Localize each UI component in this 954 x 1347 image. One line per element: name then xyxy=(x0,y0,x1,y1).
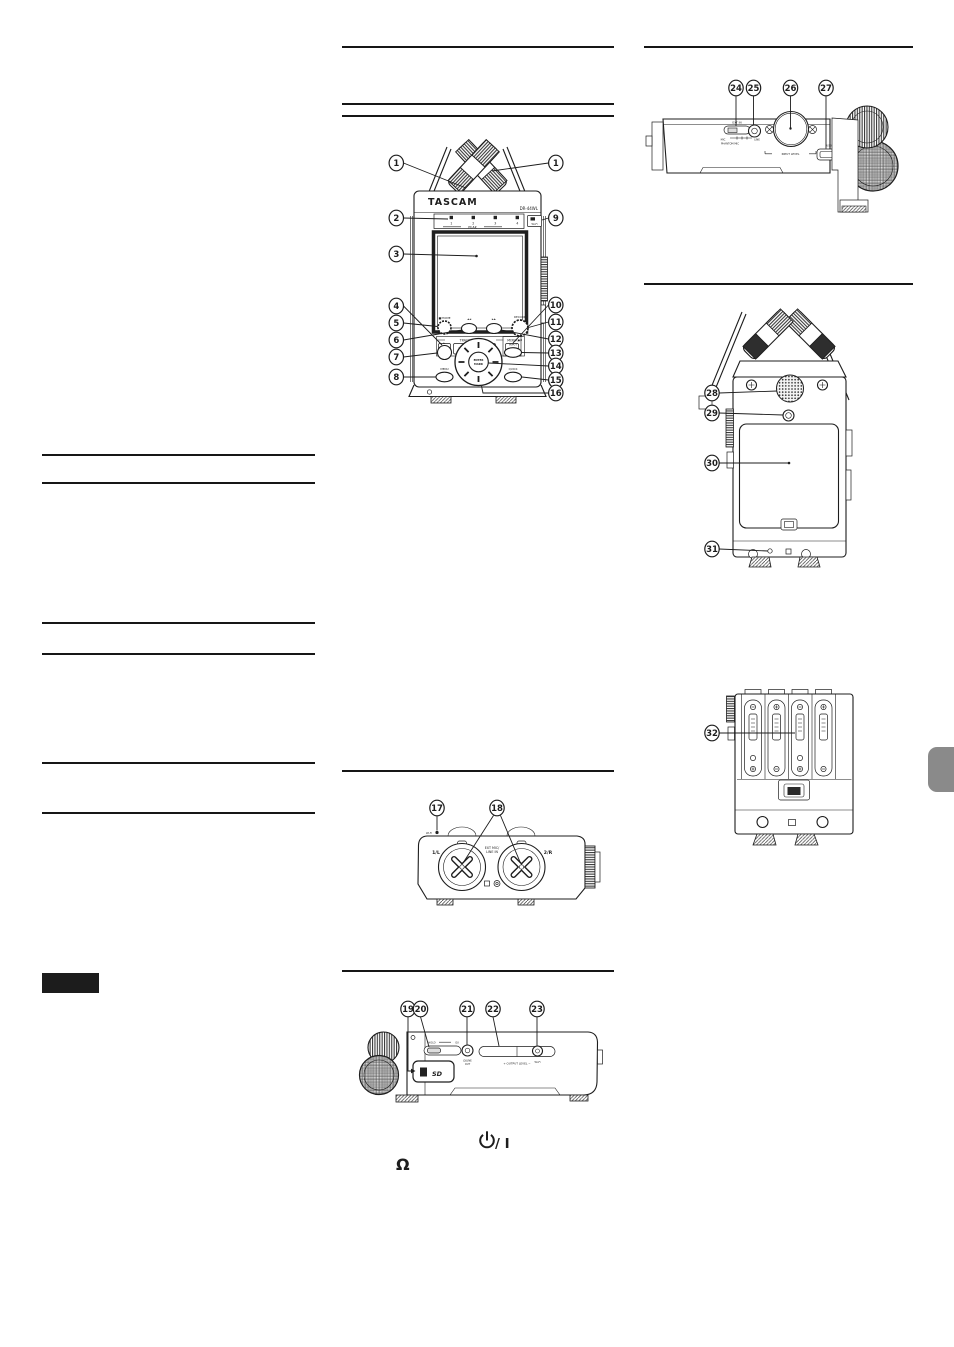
diagram-layer: TASCAM DR-44WL 1 2 3 4 PEAK Wi-Fi xyxy=(0,0,954,1347)
speaker xyxy=(777,375,804,402)
left-side-view-diagram: HOLD O/I SD Ω/LINE OUT xyxy=(360,1001,603,1102)
svg-text:26: 26 xyxy=(785,84,797,94)
svg-text:12: 12 xyxy=(550,335,562,345)
output-level-label: + OUTPUT LEVEL − xyxy=(503,1062,531,1066)
ext-in-jack[interactable] xyxy=(749,125,761,137)
svg-text:OUT: OUT xyxy=(465,1062,471,1066)
callout: 3 xyxy=(389,246,403,262)
svg-text:5: 5 xyxy=(393,319,399,329)
menu-button[interactable] xyxy=(436,372,453,382)
callout: 12 xyxy=(549,331,563,347)
record-label: RECORD xyxy=(514,315,526,319)
svg-text:8: 8 xyxy=(393,373,399,383)
svg-text:27: 27 xyxy=(820,84,832,94)
line-label: LINE xyxy=(754,137,760,141)
rear-view-diagram: 28 29 30 31 xyxy=(699,309,852,567)
callout: 29 xyxy=(705,405,719,421)
callout: 16 xyxy=(549,385,563,401)
callout: 17 xyxy=(430,800,444,816)
stop-home-label: ■/HOME xyxy=(438,316,450,320)
svg-text:18: 18 xyxy=(491,804,503,814)
svg-text:1: 1 xyxy=(450,222,452,226)
callout: 32 xyxy=(705,725,719,741)
callout: 20 xyxy=(413,1001,427,1017)
svg-text:9: 9 xyxy=(553,214,559,224)
svg-text:21: 21 xyxy=(461,1005,473,1015)
rear-mics xyxy=(741,309,836,361)
callout: 25 xyxy=(746,80,760,96)
front-view-diagram: TASCAM DR-44WL 1 2 3 4 PEAK Wi-Fi xyxy=(389,140,563,403)
power-label: O/I xyxy=(455,1040,459,1044)
svg-text:10: 10 xyxy=(550,301,562,311)
svg-text:16: 16 xyxy=(550,389,562,399)
battery-compartment-diagram: 32 xyxy=(705,690,853,846)
peak-label: PEAK xyxy=(468,225,477,229)
mic-pair xyxy=(447,140,509,195)
hold-label: HOLD xyxy=(428,1040,435,1044)
sd-card-slot[interactable]: SD xyxy=(413,1061,454,1082)
wifi-antenna-label: Wi-Fi xyxy=(426,831,432,835)
callout: 1 xyxy=(389,155,403,171)
svg-text:28: 28 xyxy=(706,389,718,399)
svg-text:3: 3 xyxy=(393,250,399,260)
ext-in-label: EXT IN xyxy=(732,120,741,124)
callout: 24 xyxy=(729,80,743,96)
svg-text:32: 32 xyxy=(706,729,718,739)
svg-text:Ω/LINE: Ω/LINE xyxy=(463,1059,472,1063)
svg-text:15: 15 xyxy=(550,376,562,386)
peak-indicators: 1 2 3 4 PEAK xyxy=(434,214,524,229)
sd-logo: SD xyxy=(432,1070,443,1078)
brand-logo: TASCAM xyxy=(428,197,478,208)
play-button[interactable] xyxy=(438,346,452,360)
right-side-view-diagram: EXT IN MIC LINE PHANTOM MIC xyxy=(646,80,898,212)
callout: 6 xyxy=(389,332,403,348)
svg-text:1: 1 xyxy=(393,159,399,169)
svg-text:31: 31 xyxy=(706,545,718,555)
callout: 10 xyxy=(549,297,563,313)
power-standby-icon xyxy=(480,1131,494,1147)
callout: 7 xyxy=(389,349,403,365)
input-level-label: INPUT LEVEL xyxy=(782,152,800,156)
ff-button[interactable] xyxy=(487,324,502,334)
svg-text:24: 24 xyxy=(730,84,742,94)
rew-button[interactable] xyxy=(462,324,477,334)
svg-text:Wi-Fi: Wi-Fi xyxy=(532,222,538,226)
headphone-symbol: Ω xyxy=(396,1155,410,1174)
svg-text:22: 22 xyxy=(487,1005,499,1015)
callout: 31 xyxy=(705,541,719,557)
callout: 4 xyxy=(389,298,403,314)
power-symbol-text: / I xyxy=(495,1136,510,1152)
strap-hole xyxy=(768,549,772,553)
jack-right-label: 2/R xyxy=(544,850,553,856)
svg-text:11: 11 xyxy=(550,318,562,328)
battery-cover[interactable] xyxy=(740,424,839,528)
record-icons: ●/II xyxy=(518,338,523,342)
svg-text:30: 30 xyxy=(706,459,718,469)
svg-text:1: 1 xyxy=(553,159,559,169)
callout: 5 xyxy=(389,315,403,331)
svg-text:MARK: MARK xyxy=(474,362,484,366)
svg-text:25: 25 xyxy=(748,84,760,94)
callout: 27 xyxy=(819,80,833,96)
callout: 18 xyxy=(490,800,504,816)
callout: 23 xyxy=(530,1001,544,1017)
svg-text:3: 3 xyxy=(494,222,496,226)
callout: 1 xyxy=(549,155,563,171)
input-button[interactable] xyxy=(505,348,522,358)
svg-text:29: 29 xyxy=(706,409,718,419)
svg-text:20: 20 xyxy=(415,1005,427,1015)
bottom-view-diagram: Wi-Fi 1/L 2/R EXT MIC/ LINE IN xyxy=(418,800,600,905)
callout: 11 xyxy=(549,314,563,330)
callout: 22 xyxy=(486,1001,500,1017)
mic-label: MIC xyxy=(721,137,726,141)
quick-label: QUICK xyxy=(509,367,518,371)
callout: 30 xyxy=(705,455,719,471)
jack-left-label: 1/L xyxy=(432,850,440,856)
svg-text:2: 2 xyxy=(393,214,399,224)
svg-text:4: 4 xyxy=(393,302,399,312)
wifi-indicator: Wi-Fi xyxy=(528,216,542,227)
svg-text:23: 23 xyxy=(531,1005,543,1015)
callout: 28 xyxy=(705,385,719,401)
manual-page: TASCAM DR-44WL 1 2 3 4 PEAK Wi-Fi xyxy=(0,0,954,1347)
usb-label: USB xyxy=(826,143,831,147)
callout: 14 xyxy=(549,358,563,374)
phantom-label: PHANTOM MIC xyxy=(721,142,739,146)
svg-text:17: 17 xyxy=(431,804,443,814)
svg-text:6: 6 xyxy=(393,336,399,346)
ext-mic-label-2: LINE IN xyxy=(486,850,498,854)
callout: 9 xyxy=(549,210,563,226)
inline-symbols: / I Ω xyxy=(396,1131,510,1174)
svg-text:14: 14 xyxy=(550,362,562,372)
callout: 8 xyxy=(389,369,403,385)
callout: 26 xyxy=(783,80,797,96)
callout: 2 xyxy=(389,210,403,226)
svg-text:13: 13 xyxy=(550,349,562,359)
svg-text:19: 19 xyxy=(402,1005,414,1015)
svg-text:4: 4 xyxy=(516,222,518,226)
menu-label: MENU xyxy=(440,367,448,371)
model-label: DR-44WL xyxy=(520,206,539,211)
strap-screw-hole xyxy=(783,410,794,421)
svg-text:7: 7 xyxy=(393,353,399,363)
jog-edge[interactable] xyxy=(541,257,548,301)
callout: 21 xyxy=(460,1001,474,1017)
svg-text:Wi-Fi: Wi-Fi xyxy=(535,1060,541,1064)
quick-button[interactable] xyxy=(505,372,522,382)
